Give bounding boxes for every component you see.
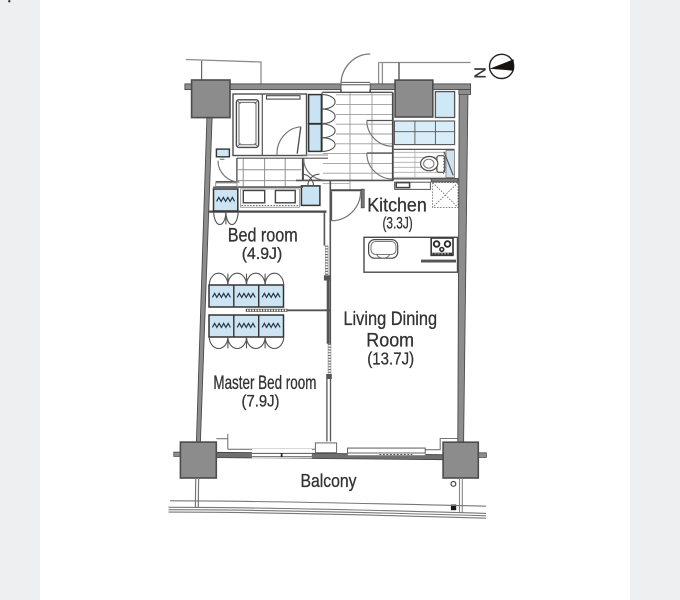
svg-text:(13.7J): (13.7J) bbox=[367, 348, 414, 368]
svg-text:(4.9J): (4.9J) bbox=[242, 244, 283, 263]
svg-text:(7.9J): (7.9J) bbox=[242, 391, 280, 410]
svg-text:(3.3J): (3.3J) bbox=[382, 213, 412, 232]
svg-text:Living Dining: Living Dining bbox=[343, 309, 437, 330]
svg-text:N: N bbox=[473, 67, 490, 79]
svg-text:Balcony: Balcony bbox=[301, 471, 357, 491]
